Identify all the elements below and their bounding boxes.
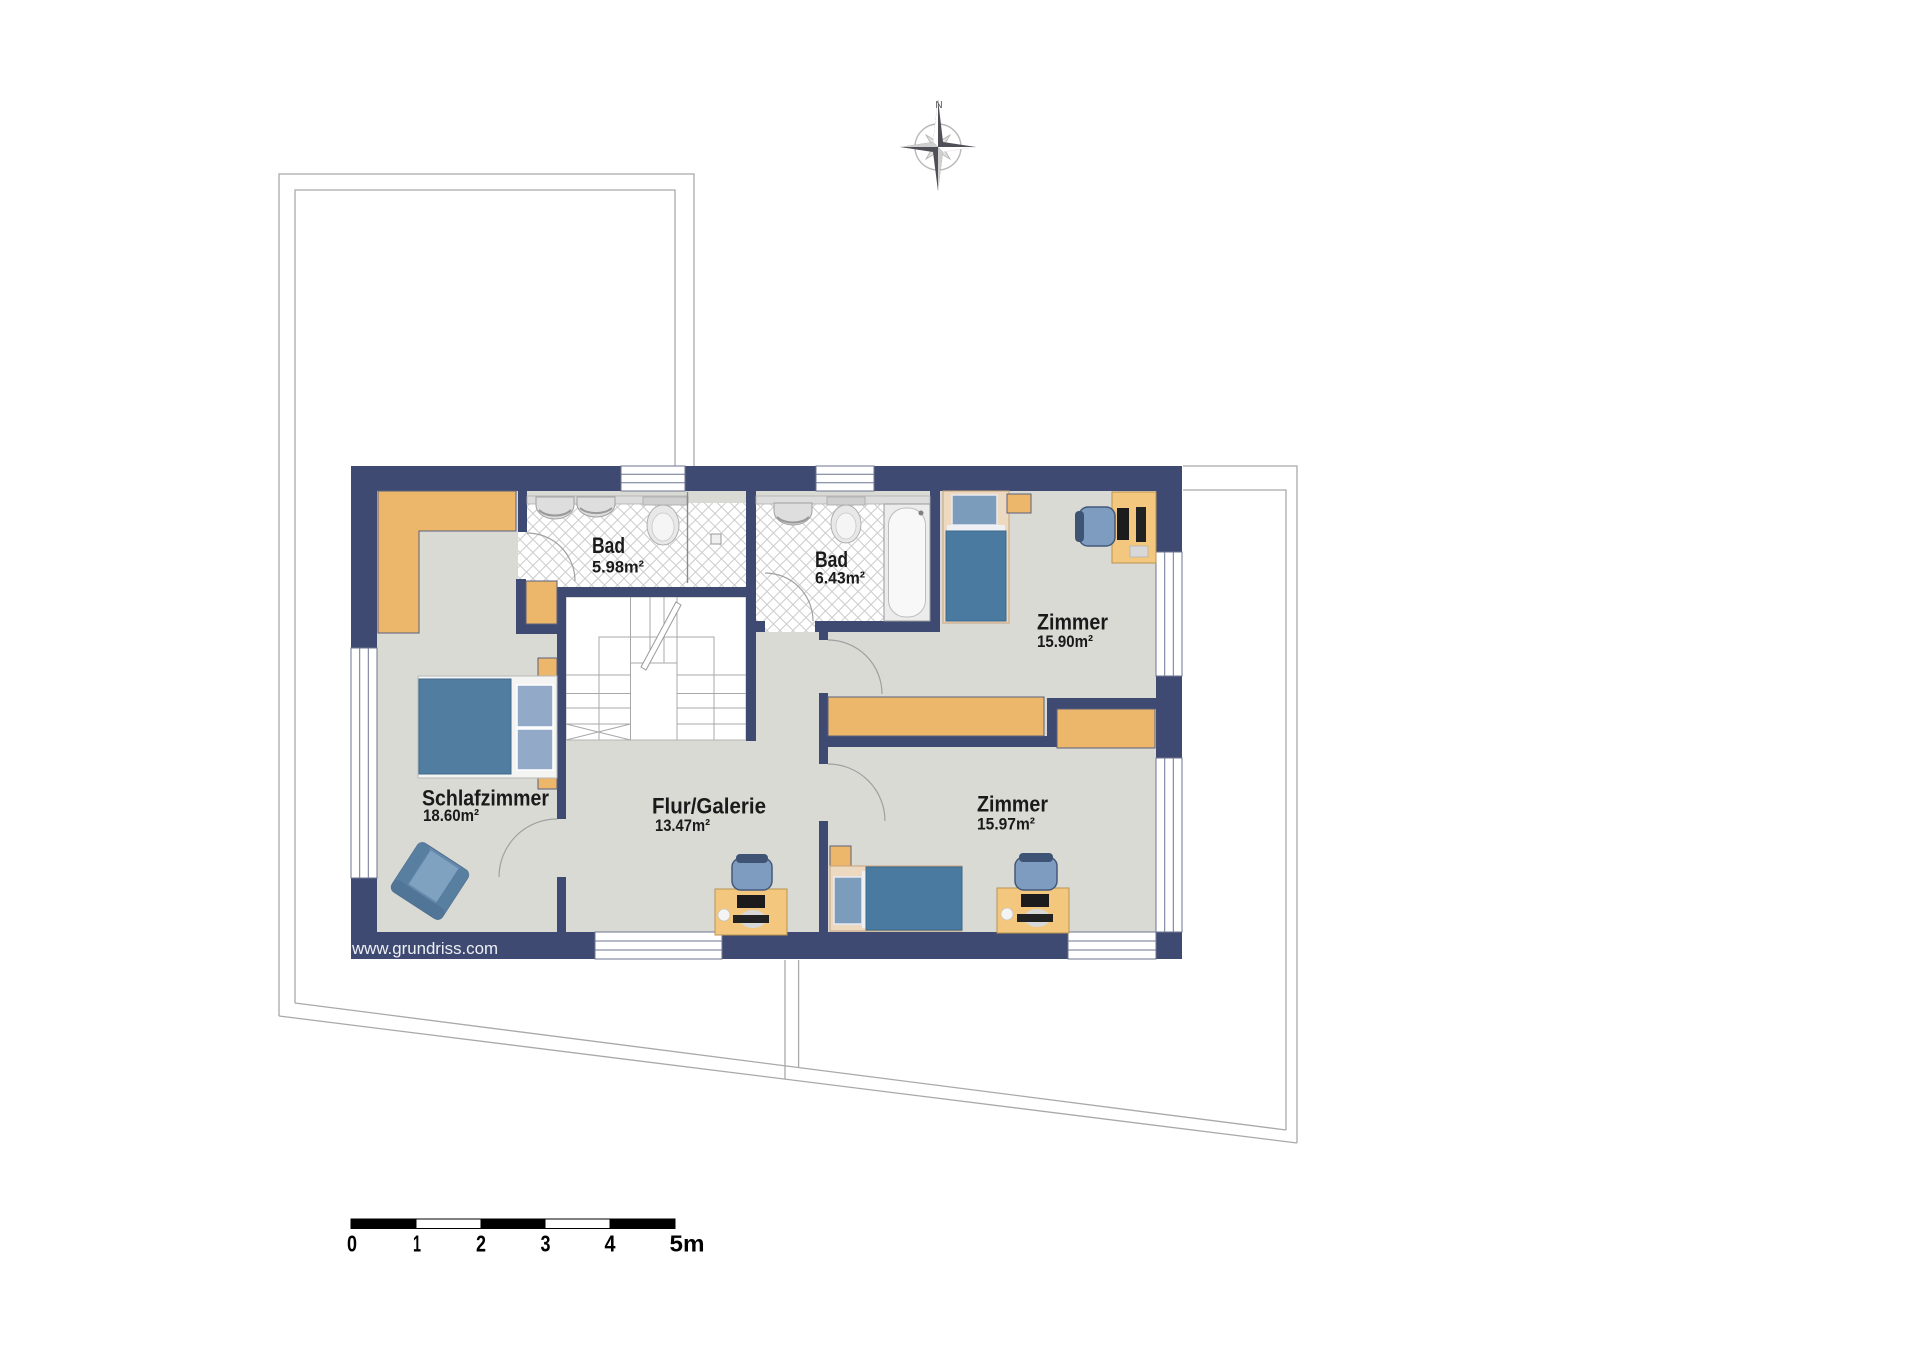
svg-text:Zimmer: Zimmer [977,792,1048,817]
svg-text:Zimmer: Zimmer [1037,610,1108,635]
svg-text:15.90m²: 15.90m² [1037,633,1093,651]
svg-text:6.43m²: 6.43m² [815,570,865,588]
svg-text:Bad: Bad [592,533,625,558]
svg-text:5.98m²: 5.98m² [592,559,645,577]
svg-text:2: 2 [476,1231,486,1257]
svg-text:13.47m²: 13.47m² [655,817,710,835]
svg-text:3: 3 [541,1231,551,1257]
svg-text:1: 1 [413,1231,421,1257]
svg-text:18.60m²: 18.60m² [423,807,479,825]
svg-text:www.grundriss.com: www.grundriss.com [351,939,498,958]
svg-text:0: 0 [347,1231,357,1257]
svg-text:Bad: Bad [815,547,848,572]
svg-text:4: 4 [605,1231,616,1257]
svg-text:Flur/Galerie: Flur/Galerie [652,794,766,819]
svg-text:15.97m²: 15.97m² [977,816,1035,834]
svg-text:N: N [935,100,942,111]
svg-text:5m: 5m [670,1231,705,1257]
